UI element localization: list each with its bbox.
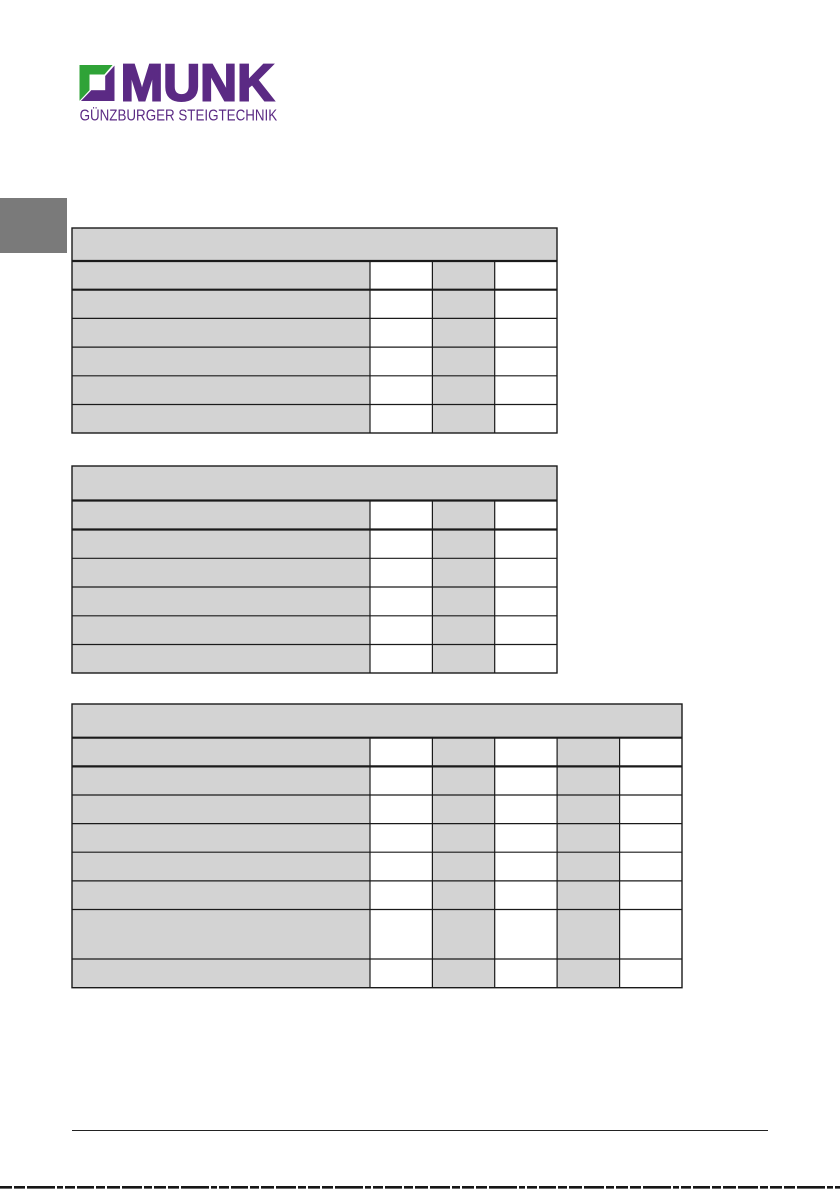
svg-text:MUNK: MUNK (121, 55, 275, 113)
svg-text:GÜNZBURGER STEIGTECHNIK: GÜNZBURGER STEIGTECHNIK (80, 107, 278, 125)
